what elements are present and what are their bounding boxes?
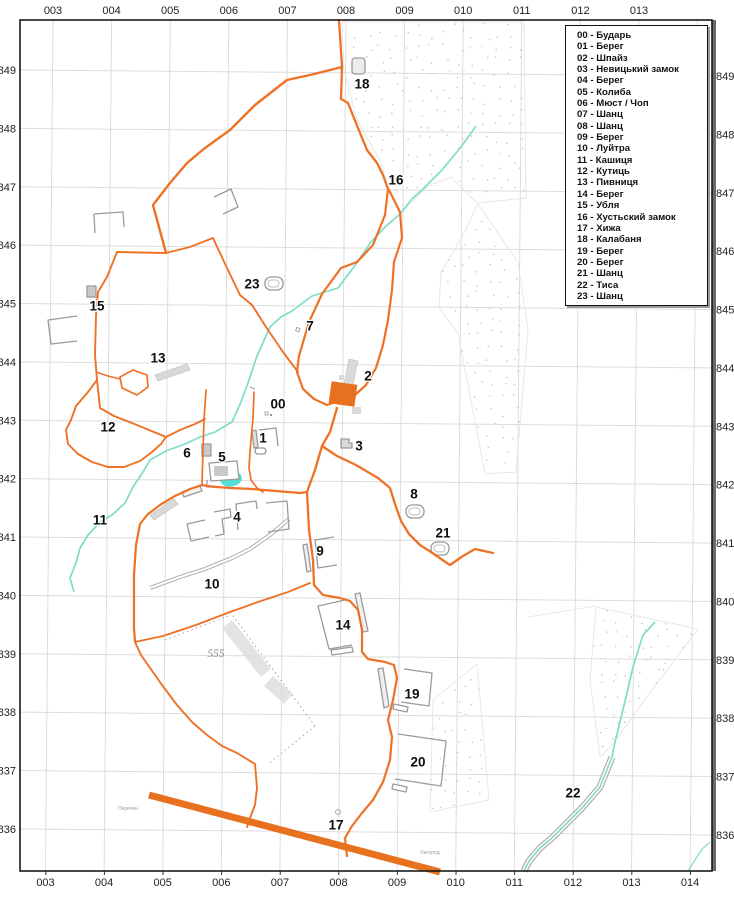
stipple-dot — [458, 109, 460, 111]
stipple-dot — [613, 715, 615, 717]
stipple-dot — [371, 136, 373, 138]
axis-label-left: 838 — [0, 707, 16, 719]
stipple-dot — [510, 36, 512, 38]
stipple-dot — [482, 124, 484, 126]
stipple-dot — [462, 139, 464, 141]
axis-label-right: 847 — [716, 188, 734, 200]
stipple-dot — [444, 790, 446, 792]
legend-item-10: 10 - Луйтра — [577, 143, 703, 154]
stipple-dot — [381, 99, 383, 101]
stipple-dot — [487, 346, 489, 348]
stipple-dot — [474, 372, 476, 374]
stipple-dot — [486, 460, 488, 462]
site-structure-18 — [352, 58, 365, 74]
stipple-dot — [477, 332, 479, 334]
map-point-label: 3 — [355, 439, 363, 454]
stipple-dot — [508, 155, 510, 157]
stipple-dot — [428, 127, 430, 129]
stipple-dot — [409, 101, 411, 103]
stipple-dot — [418, 25, 420, 27]
site-structure-1 — [255, 448, 266, 454]
stipple-dot — [410, 59, 412, 61]
stipple-dot — [439, 718, 441, 720]
stipple-dot — [630, 646, 632, 648]
stipple-dot — [501, 259, 503, 261]
stipple-dot — [517, 370, 519, 372]
stipple-dot — [666, 629, 668, 631]
legend-item-17: 17 - Хижа — [577, 223, 703, 234]
area-elevation-label: 555 — [207, 648, 225, 660]
axis-label-left: 842 — [0, 474, 16, 486]
axis-label-right: 848 — [716, 129, 734, 141]
stipple-dot — [463, 30, 465, 32]
stipple-dot — [663, 669, 665, 671]
stipple-dot — [615, 622, 617, 624]
map-point-label: 9 — [316, 544, 324, 559]
stipple-dot — [481, 323, 483, 325]
stipple-dot — [479, 241, 481, 243]
map-point-label: 2 — [364, 369, 372, 384]
stipple-dot — [500, 115, 502, 117]
stipple-dot — [502, 395, 504, 397]
stipple-dot — [447, 281, 449, 283]
stipple-dot — [502, 416, 504, 418]
stipple-dot — [504, 269, 506, 271]
stipple-dot — [407, 138, 409, 140]
stipple-dot — [643, 647, 645, 649]
toponym-small-label: Ужгород — [420, 850, 439, 856]
stipple-dot — [446, 134, 448, 136]
stipple-dot — [510, 47, 512, 49]
stipple-dot — [354, 37, 356, 39]
legend-item-16: 16 - Хустьский замок — [577, 212, 703, 223]
legend-item-05: 05 - Колиба — [577, 87, 703, 98]
stipple-dot — [676, 634, 678, 636]
axis-label-bottom: 006 — [212, 877, 230, 889]
axis-label-left: 847 — [0, 182, 16, 194]
stipple-dot — [445, 780, 447, 782]
stipple-dot — [479, 781, 481, 783]
stipple-dot — [467, 295, 469, 297]
stipple-dot — [514, 163, 516, 165]
stipple-dot — [516, 278, 518, 280]
stipple-dot — [470, 37, 472, 39]
axis-label-left: 845 — [0, 299, 16, 311]
stipple-dot — [481, 767, 483, 769]
stipple-dot — [519, 168, 521, 170]
stipple-dot — [441, 129, 443, 131]
map-point-label: 22 — [565, 786, 580, 801]
stipple-dot — [601, 674, 603, 676]
stipple-dot — [520, 49, 522, 51]
stipple-dot — [428, 44, 430, 46]
stipple-dot — [601, 644, 603, 646]
stipple-dot — [605, 661, 607, 663]
axis-label-left: 836 — [0, 824, 16, 836]
stipple-dot — [353, 46, 355, 48]
map-point-label: 18 — [354, 77, 370, 92]
axis-label-left: 837 — [0, 766, 16, 778]
stipple-dot — [392, 148, 394, 150]
stipple-dot — [416, 57, 418, 59]
stipple-dot — [476, 271, 478, 273]
stipple-dot — [494, 246, 496, 248]
axis-label-left: 844 — [0, 357, 16, 369]
legend-item-21: 21 - Шанц — [577, 268, 703, 279]
stipple-dot — [481, 46, 483, 48]
stipple-dot — [505, 462, 507, 464]
stipple-dot — [408, 154, 410, 156]
stipple-dot — [477, 426, 479, 428]
stipple-dot — [508, 451, 510, 453]
stipple-dot — [511, 100, 513, 102]
stipple-dot — [431, 173, 433, 175]
stipple-dot — [395, 35, 397, 37]
map-point-label: 21 — [435, 526, 451, 541]
stipple-dot — [392, 104, 394, 106]
axis-label-top: 011 — [513, 5, 531, 17]
stipple-dot — [355, 99, 357, 101]
stipple-dot — [474, 396, 476, 398]
stipple-dot — [489, 308, 491, 310]
stipple-dot — [514, 187, 516, 189]
map-point-label: 19 — [404, 687, 419, 702]
stipple-dot — [519, 334, 521, 336]
stipple-dot — [431, 62, 433, 64]
stipple-dot — [433, 727, 435, 729]
stipple-dot — [455, 310, 457, 312]
stipple-dot — [500, 167, 502, 169]
stipple-dot — [402, 90, 404, 92]
axis-label-right: 849 — [716, 71, 734, 83]
stipple-dot — [496, 37, 498, 39]
stipple-dot — [482, 69, 484, 71]
stipple-dot — [645, 659, 647, 661]
stipple-dot — [613, 680, 615, 682]
map-point-label: 6 — [183, 446, 191, 461]
stipple-dot — [379, 32, 381, 34]
map-point-label: 11 — [93, 513, 108, 528]
stipple-dot — [456, 780, 458, 782]
site-00-marker — [270, 414, 272, 416]
stipple-dot — [506, 377, 508, 379]
stipple-dot — [371, 75, 373, 77]
stipple-dot — [418, 45, 420, 47]
map-point-label: 17 — [328, 818, 343, 833]
stipple-dot — [416, 187, 418, 189]
stipple-dot — [629, 655, 631, 657]
stipple-dot — [517, 349, 519, 351]
stipple-dot — [495, 49, 497, 51]
stipple-dot — [492, 329, 494, 331]
map-point-label: 10 — [204, 577, 219, 592]
stipple-dot — [465, 713, 467, 715]
axis-label-bottom: 010 — [447, 877, 465, 889]
stipple-dot — [503, 437, 505, 439]
axis-label-top: 010 — [454, 5, 472, 17]
legend-item-09: 09 - Берег — [577, 132, 703, 143]
axis-label-top: 012 — [571, 5, 589, 17]
stipple-dot — [484, 22, 486, 24]
stipple-dot — [447, 59, 449, 61]
map-point-label: 4 — [233, 510, 241, 525]
stipple-dot — [659, 669, 661, 671]
stipple-dot — [377, 44, 379, 46]
stipple-dot — [505, 383, 507, 385]
stipple-dot — [487, 149, 489, 151]
stipple-dot — [518, 292, 520, 294]
stipple-dot — [442, 702, 444, 704]
stipple-dot — [489, 264, 491, 266]
stipple-dot — [371, 49, 373, 51]
axis-label-top: 007 — [278, 5, 296, 17]
stipple-dot — [490, 408, 492, 410]
stipple-dot — [478, 252, 480, 254]
stipple-dot — [382, 62, 384, 64]
axis-label-bottom: 008 — [329, 877, 347, 889]
stipple-dot — [501, 187, 503, 189]
stipple-dot — [520, 56, 522, 58]
stipple-dot — [370, 35, 372, 37]
stipple-dot — [462, 264, 464, 266]
stipple-dot — [521, 109, 523, 111]
axis-label-left: 839 — [0, 649, 16, 661]
axis-label-top: 005 — [161, 5, 179, 17]
stipple-dot — [606, 631, 608, 633]
stipple-dot — [519, 306, 521, 308]
stipple-dot — [493, 177, 495, 179]
stipple-dot — [496, 142, 498, 144]
stipple-dot — [509, 59, 511, 61]
axis-label-right: 840 — [716, 596, 734, 608]
axis-label-right: 838 — [716, 713, 734, 725]
stipple-dot — [487, 57, 489, 59]
stipple-dot — [391, 113, 393, 115]
stipple-dot — [665, 623, 667, 625]
stipple-dot — [440, 807, 442, 809]
stipple-dot — [480, 739, 482, 741]
stipple-dot — [455, 23, 457, 25]
stipple-dot — [451, 730, 453, 732]
axis-label-right: 845 — [716, 305, 734, 317]
legend-item-12: 12 - Кутиць — [577, 166, 703, 177]
stipple-dot — [432, 165, 434, 167]
axis-label-left: 848 — [0, 123, 16, 135]
stipple-dot — [502, 427, 504, 429]
stipple-dot — [407, 32, 409, 34]
map-point-label: 16 — [388, 173, 404, 188]
stipple-dot — [494, 423, 496, 425]
stipple-dot — [486, 359, 488, 361]
stipple-dot — [383, 71, 385, 73]
legend-item-15: 15 - Убля — [577, 200, 703, 211]
stipple-dot — [470, 46, 472, 48]
stipple-dot — [509, 122, 511, 124]
stipple-dot — [492, 318, 494, 320]
legend-item-14: 14 - Берег — [577, 189, 703, 200]
stipple-dot — [482, 381, 484, 383]
stipple-dot — [431, 72, 433, 74]
legend-item-03: 03 - Невицький замок — [577, 64, 703, 75]
stipple-dot — [449, 70, 451, 72]
stipple-dot — [436, 97, 438, 99]
stipple-dot — [667, 646, 669, 648]
stipple-dot — [453, 792, 455, 794]
stipple-dot — [478, 362, 480, 364]
stipple-dot — [431, 38, 433, 40]
site-2-main-building — [329, 381, 358, 406]
stipple-dot — [507, 296, 509, 298]
stipple-dot — [500, 321, 502, 323]
stipple-dot — [475, 409, 477, 411]
stipple-dot — [507, 72, 509, 74]
stipple-dot — [403, 129, 405, 131]
axis-label-bottom: 012 — [564, 877, 582, 889]
stipple-dot — [469, 778, 471, 780]
stipple-dot — [476, 291, 478, 293]
map-point-label: 14 — [335, 618, 351, 633]
legend-item-13: 13 - Пивниця — [577, 177, 703, 188]
stipple-dot — [469, 756, 471, 758]
stipple-dot — [690, 633, 692, 635]
stipple-dot — [495, 122, 497, 124]
stipple-dot — [460, 167, 462, 169]
stipple-dot — [489, 396, 491, 398]
stipple-dot — [665, 663, 667, 665]
stipple-dot — [391, 134, 393, 136]
stipple-dot — [606, 708, 608, 710]
stipple-dot — [477, 348, 479, 350]
toponym-small-label: Перечин — [118, 806, 138, 812]
legend-item-22: 22 - Тиса — [577, 280, 703, 291]
stipple-dot — [512, 438, 514, 440]
stipple-dot — [432, 808, 434, 810]
stipple-dot — [470, 769, 472, 771]
stipple-dot — [417, 163, 419, 165]
stipple-dot — [463, 50, 465, 52]
stipple-dot — [485, 191, 487, 193]
stipple-dot — [416, 156, 418, 158]
stipple-dot — [465, 686, 467, 688]
stipple-dot — [514, 384, 516, 386]
axis-label-bottom: 014 — [681, 877, 699, 889]
stipple-dot — [492, 384, 494, 386]
stipple-dot — [476, 285, 478, 287]
stipple-dot — [444, 731, 446, 733]
map-point-label: 15 — [89, 299, 105, 314]
stipple-dot — [487, 447, 489, 449]
stipple-dot — [474, 82, 476, 84]
stipple-dot — [603, 620, 605, 622]
stipple-dot — [467, 791, 469, 793]
stipple-dot — [657, 635, 659, 637]
axis-label-bottom: 013 — [622, 877, 640, 889]
map-legend: 00 - Бударь01 - Берег02 - Шпайз03 - Неви… — [565, 25, 708, 306]
stipple-dot — [469, 333, 471, 335]
stipple-dot — [419, 135, 421, 137]
stipple-dot — [473, 98, 475, 100]
stipple-dot — [468, 257, 470, 259]
map-point-label: 7 — [306, 319, 314, 334]
stipple-dot — [512, 114, 514, 116]
map-point-label: 8 — [410, 487, 418, 502]
axis-label-right: 839 — [716, 655, 734, 667]
axis-label-right: 837 — [716, 772, 734, 784]
stipple-dot — [600, 732, 602, 734]
stipple-dot — [445, 765, 447, 767]
stipple-dot — [607, 610, 609, 612]
site-2-block — [352, 407, 361, 414]
stipple-dot — [444, 150, 446, 152]
stipple-dot — [506, 142, 508, 144]
stipple-dot — [459, 180, 461, 182]
stipple-dot — [487, 179, 489, 181]
axis-label-bottom: 004 — [95, 877, 113, 889]
stipple-dot — [480, 755, 482, 757]
stipple-dot — [484, 103, 486, 105]
stipple-dot — [464, 729, 466, 731]
map-point-label: 00 — [270, 397, 285, 412]
stipple-dot — [436, 109, 438, 111]
stipple-dot — [638, 697, 640, 699]
stipple-dot — [406, 187, 408, 189]
stipple-dot — [489, 370, 491, 372]
stipple-dot — [517, 407, 519, 409]
stipple-dot — [514, 86, 516, 88]
stipple-dot — [431, 789, 433, 791]
stipple-dot — [476, 309, 478, 311]
stipple-dot — [431, 90, 433, 92]
site-2-block — [339, 375, 344, 380]
stipple-dot — [457, 87, 459, 89]
map-point-label: 20 — [410, 755, 425, 770]
legend-item-19: 19 - Берег — [577, 246, 703, 257]
stipple-dot — [470, 77, 472, 79]
stipple-dot — [521, 123, 523, 125]
stipple-dot — [366, 56, 368, 58]
stipple-dot — [629, 701, 631, 703]
stipple-dot — [468, 122, 470, 124]
axis-label-top: 006 — [220, 5, 238, 17]
stipple-dot — [486, 136, 488, 138]
axis-label-top: 009 — [395, 5, 413, 17]
stipple-dot — [429, 154, 431, 156]
stipple-dot — [493, 253, 495, 255]
stipple-dot — [466, 305, 468, 307]
axis-label-left: 840 — [0, 590, 16, 602]
map-point-label: 23 — [244, 277, 260, 292]
stipple-dot — [500, 331, 502, 333]
stipple-dot — [522, 148, 524, 150]
stipple-dot — [442, 271, 444, 273]
stipple-dot — [625, 711, 627, 713]
stipple-dot — [615, 646, 617, 648]
stipple-dot — [484, 85, 486, 87]
legend-item-20: 20 - Берег — [577, 257, 703, 268]
stipple-dot — [489, 39, 491, 41]
stipple-dot — [418, 87, 420, 89]
stipple-dot — [406, 77, 408, 79]
stipple-dot — [448, 97, 450, 99]
stipple-dot — [500, 308, 502, 310]
map-point-label: 13 — [150, 351, 166, 366]
stipple-dot — [507, 179, 509, 181]
legend-item-01: 01 - Берег — [577, 41, 703, 52]
stipple-dot — [618, 661, 620, 663]
stipple-dot — [450, 296, 452, 298]
stipple-dot — [390, 57, 392, 59]
stipple-dot — [499, 86, 501, 88]
